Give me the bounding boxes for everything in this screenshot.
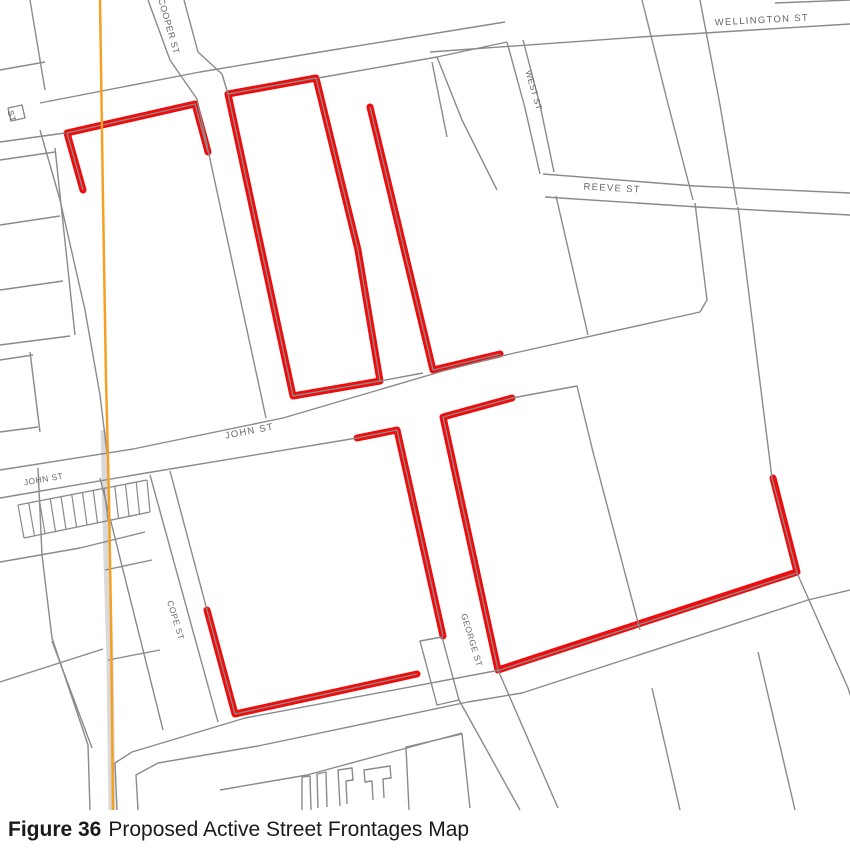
road-line — [52, 641, 92, 748]
road-line — [370, 107, 500, 370]
road-line — [545, 197, 850, 215]
road-line — [0, 336, 70, 345]
road-line — [0, 216, 60, 225]
road-line — [198, 52, 228, 94]
street-label: WEST ST — [523, 69, 544, 111]
figure-caption-title: Proposed Active Street Frontages Map — [108, 818, 469, 841]
road-line — [357, 430, 443, 636]
road-line — [108, 650, 160, 660]
street-label: ST — [5, 109, 18, 123]
road-line — [150, 475, 218, 722]
hatch-line — [72, 495, 77, 528]
active-frontage-line — [443, 398, 512, 670]
road-line — [170, 471, 207, 610]
hatch-line — [136, 482, 139, 514]
road-line — [136, 590, 850, 810]
road-line — [30, 0, 45, 90]
hatch-line — [147, 480, 150, 512]
road-line — [40, 22, 505, 103]
road-line — [0, 62, 45, 70]
road-line — [302, 776, 311, 810]
street-label: JOHN ST — [23, 471, 64, 488]
road-line — [642, 0, 693, 200]
active-frontage-line — [357, 430, 443, 636]
hatch-line — [83, 493, 88, 526]
road-line — [184, 0, 198, 52]
active-frontage-line — [498, 478, 797, 670]
street-label: WELLINGTON ST — [714, 13, 809, 29]
road-line — [437, 57, 497, 190]
figure-caption-label: Figure 36 — [8, 818, 101, 841]
road-line — [67, 104, 208, 190]
road-line — [443, 398, 512, 670]
active-frontage-line — [207, 610, 417, 714]
street-label: COOPER ST — [156, 0, 181, 55]
road-line — [220, 733, 462, 790]
active-frontage-line — [370, 107, 500, 370]
road-line — [420, 637, 459, 705]
hatch-line — [50, 499, 55, 532]
street-label: GEORGE ST — [459, 612, 485, 668]
road-line — [0, 133, 65, 142]
road-line — [0, 438, 357, 498]
hatch-line — [126, 484, 130, 516]
road-line — [406, 734, 470, 810]
road-line — [0, 355, 33, 360]
figure-caption: Figure 36Proposed Active Street Frontage… — [0, 812, 850, 842]
road-line — [148, 0, 266, 418]
street-label: REEVE ST — [583, 182, 641, 196]
road-line — [364, 766, 391, 800]
map-figure: COOPER STSTWELLINGTON STWEST STREEVE STJ… — [0, 0, 850, 812]
road-line — [432, 62, 447, 137]
road-line — [0, 532, 145, 562]
road-line — [30, 352, 40, 432]
road-line — [430, 24, 850, 52]
road-line — [556, 196, 588, 335]
hatch-line — [18, 505, 24, 538]
road-line — [0, 281, 63, 290]
road-line — [652, 688, 680, 810]
road-line — [758, 652, 795, 810]
hatch-line — [29, 503, 35, 536]
road-line — [0, 427, 38, 432]
road-line — [40, 130, 107, 453]
map-svg: COOPER STSTWELLINGTON STWEST STREEVE STJ… — [0, 0, 850, 812]
road-line — [0, 649, 103, 682]
road-line — [55, 148, 75, 335]
road-line — [512, 386, 640, 630]
road-line — [775, 0, 850, 3]
street-label: COPE ST — [165, 599, 186, 641]
road-line — [317, 772, 327, 808]
hatch-line — [115, 486, 119, 518]
hatch-line — [61, 497, 66, 530]
road-line — [380, 373, 423, 381]
hatch-line — [93, 490, 97, 522]
road-line — [338, 768, 353, 806]
road-line — [105, 560, 152, 570]
